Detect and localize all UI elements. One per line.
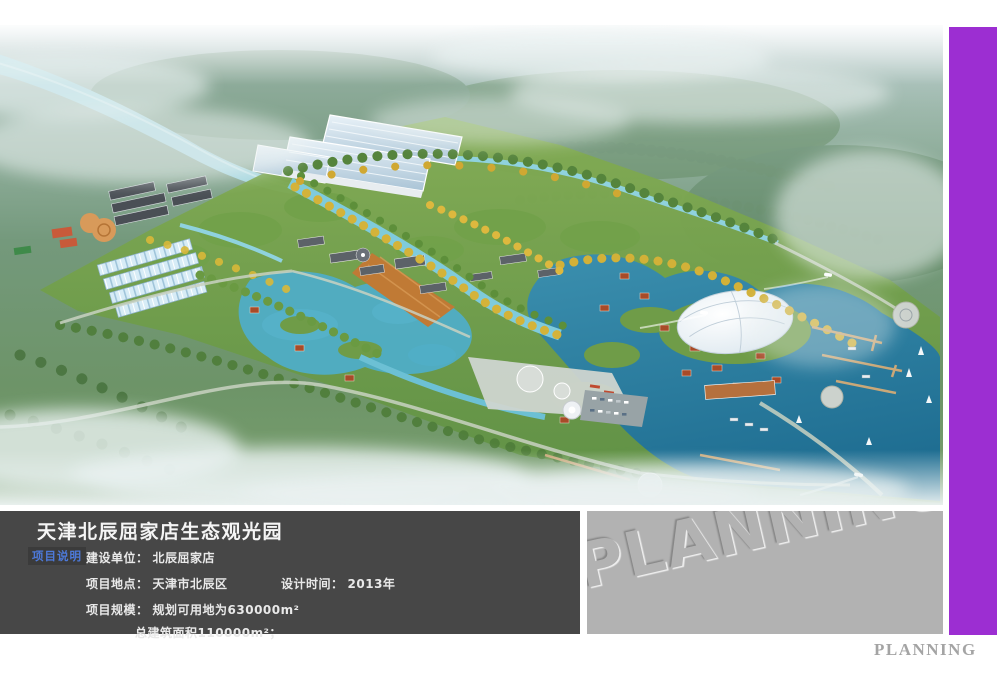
watermark-panel: PLANNING [587,511,943,634]
footer-planning-text: PLANNING [874,640,977,660]
field-construction-unit: 建设单位：北辰屈家店 [86,549,215,566]
section-label: 项目说明 [28,547,86,565]
field-label: 建设单位： [86,551,149,565]
presentation-board: 天津北辰屈家店生态观光园 项目说明 建设单位：北辰屈家店 项目地点：天津市北辰区… [0,0,1000,678]
page-title: 天津北辰屈家店生态观光园 [37,517,283,544]
field-label: 设计时间： [281,577,344,591]
field-value: 北辰屈家店 [153,551,216,565]
field-value: 规划可用地为630000m² [153,603,300,617]
aerial-rendering-canvas [0,25,943,505]
planning-watermark: PLANNING [587,511,943,603]
project-info-panel: 天津北辰屈家店生态观光园 项目说明 建设单位：北辰屈家店 项目地点：天津市北辰区… [0,511,580,634]
field-project-scale: 项目规模：规划可用地为630000m² [86,601,299,618]
aerial-rendering [0,25,943,505]
field-total-floor-area: 总建筑面积110000m²； [135,624,282,641]
field-value: 2013年 [348,577,396,591]
field-project-location: 项目地点：天津市北辰区 [86,575,228,592]
field-label: 项目地点： [86,577,149,591]
field-value: 天津市北辰区 [153,577,228,591]
field-value: 总建筑面积110000m²； [135,626,282,640]
field-design-date: 设计时间：2013年 [281,575,395,592]
field-label: 项目规模： [86,603,149,617]
accent-stripe [949,27,997,635]
